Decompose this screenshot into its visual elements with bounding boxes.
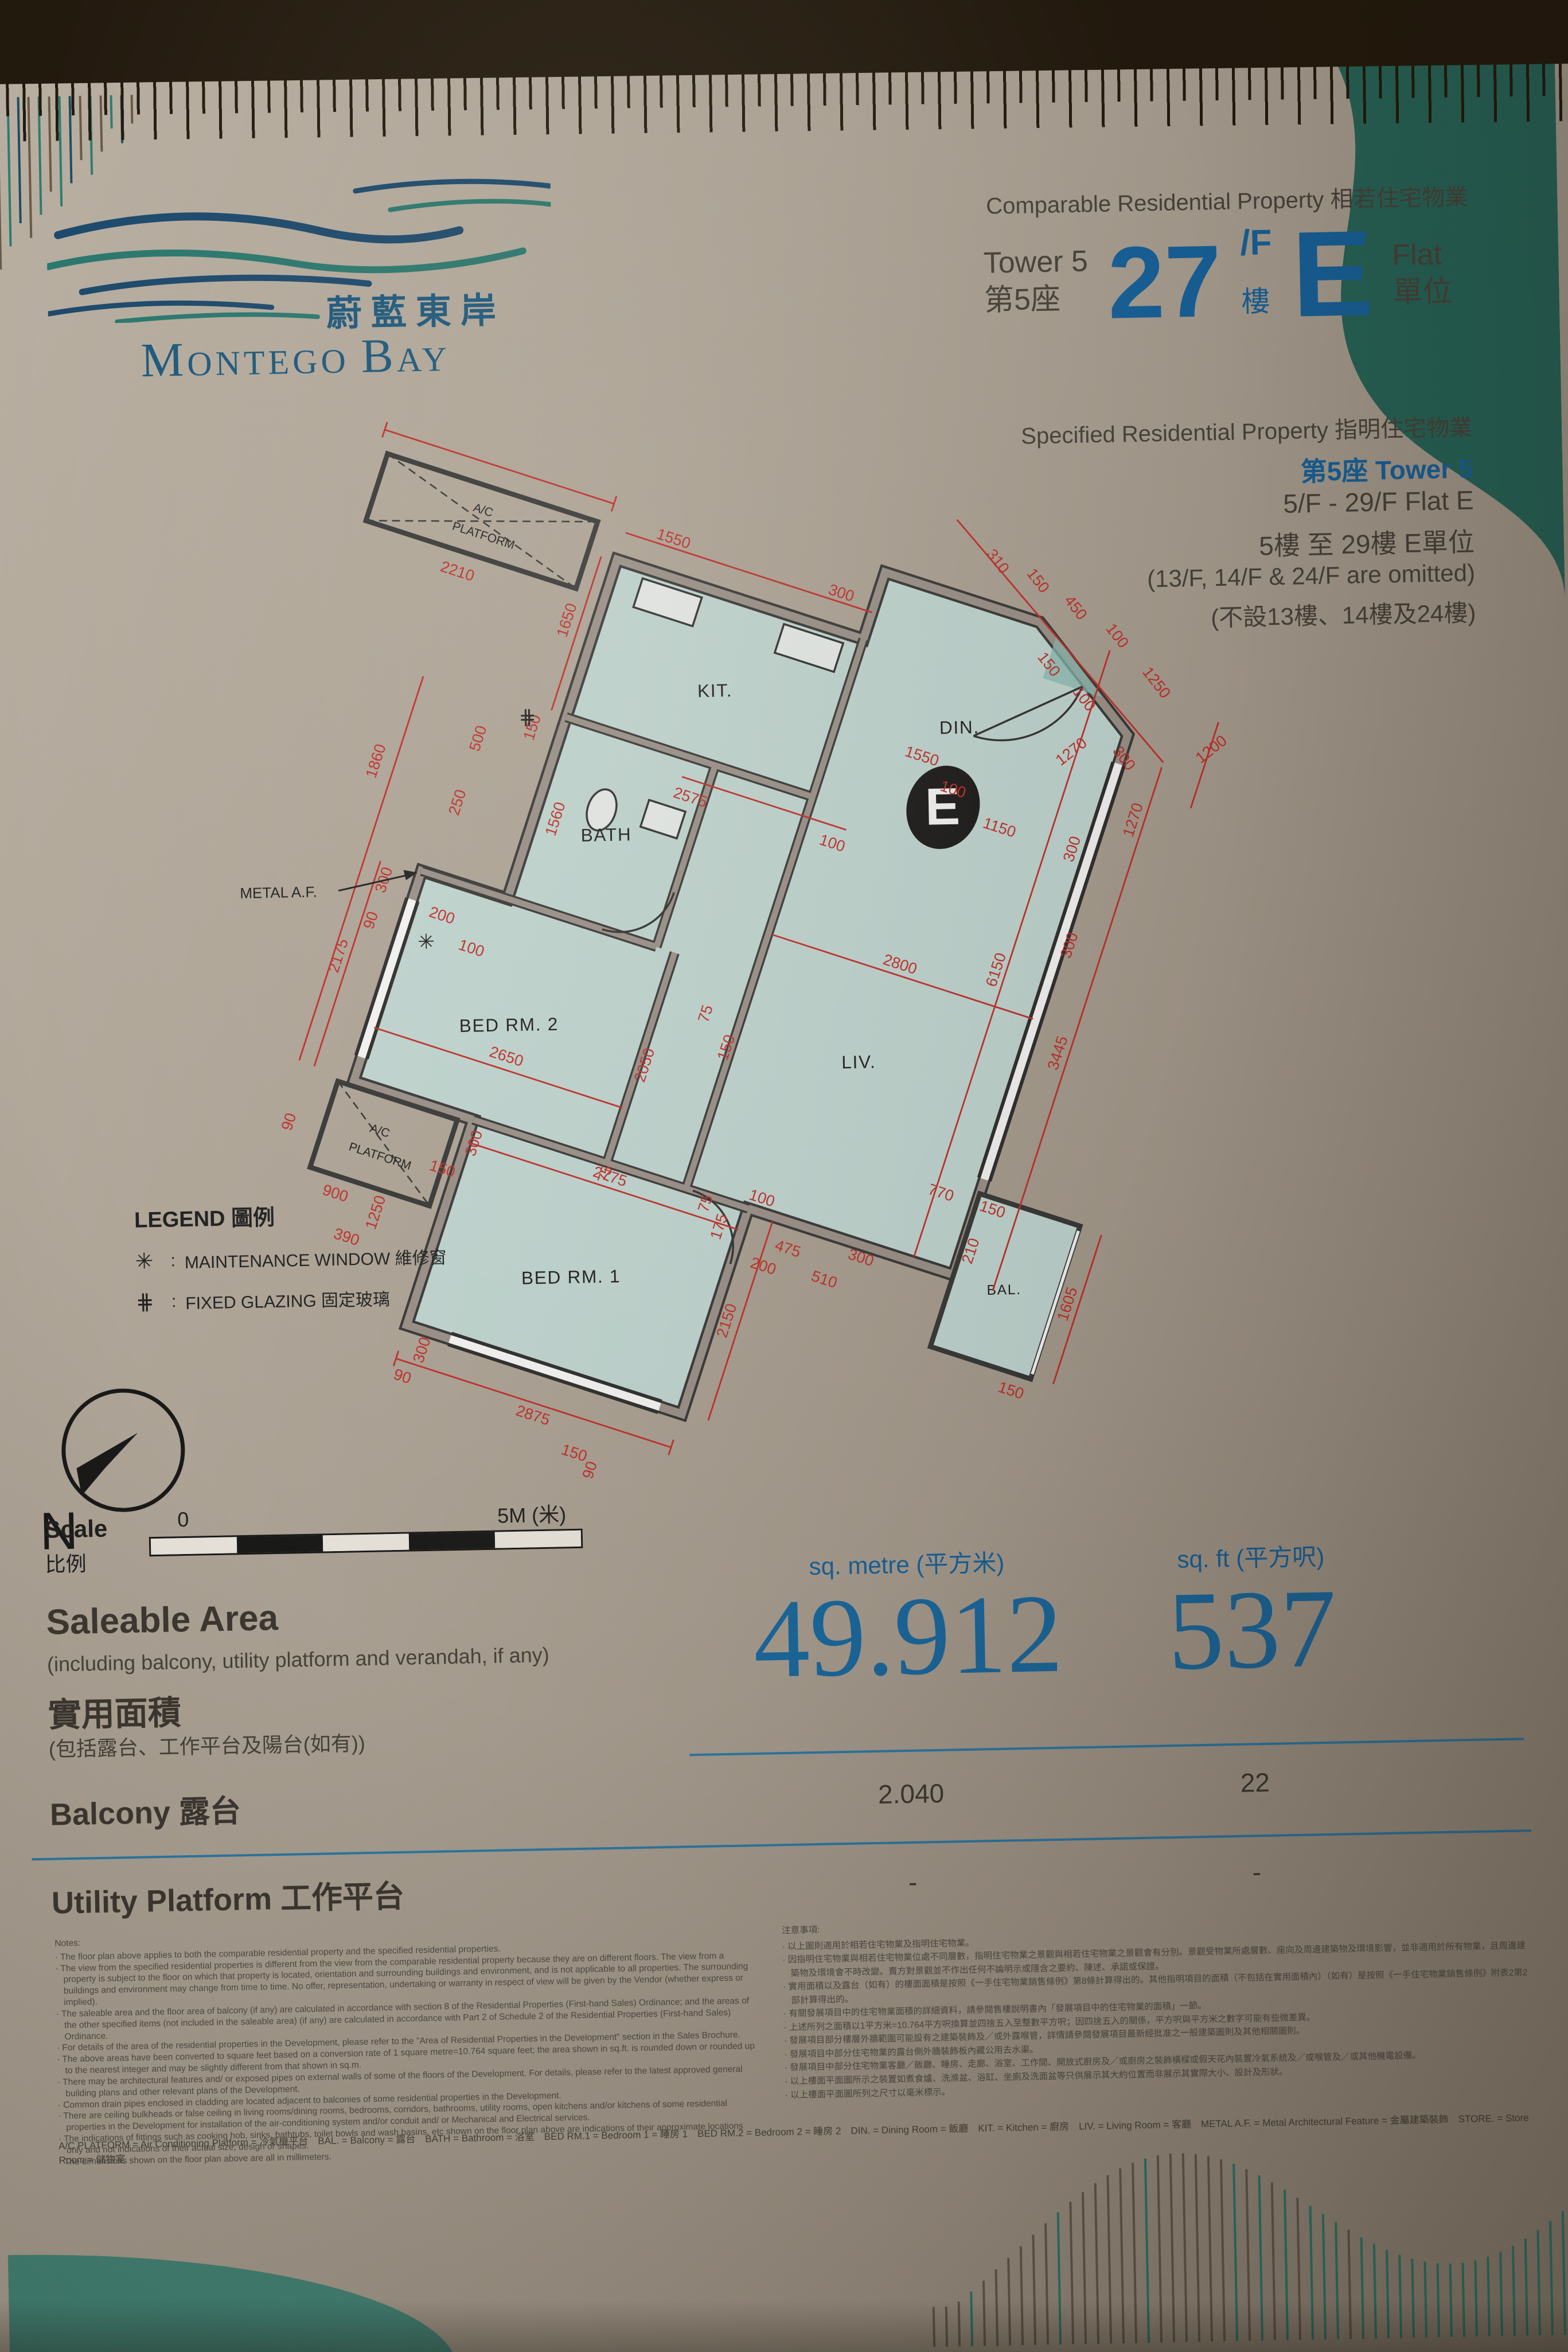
room-label-dining: DIN.: [939, 716, 980, 738]
deco-bar: [1058, 2212, 1060, 2345]
deco-bar: [1297, 2198, 1300, 2340]
deco-bar: [1488, 2257, 1489, 2337]
floor-range-zh: 5樓 至 29樓 E單位: [1259, 521, 1475, 563]
deco-bar: [1234, 2164, 1237, 2341]
floorplan-poster: 蔚藍東岸 MONTEGO BAY Comparable Residential …: [0, 0, 1568, 2352]
saleable-area-subtitle-en: (including balcony, utility platform and…: [47, 1643, 549, 1677]
deco-bar: [1120, 2168, 1124, 2343]
legend-maintenance-label: MAINTENANCE WINDOW 維修窗: [184, 1243, 446, 1274]
deco-bar: [1107, 2175, 1111, 2343]
deco-bar: [1387, 2250, 1388, 2338]
deco-bar: [1450, 2264, 1452, 2337]
floor-suffix: /F 樓: [1240, 222, 1273, 322]
balcony-row-label: Balcony 露台: [49, 1785, 241, 1834]
saleable-area-title-en: Saleable Area: [46, 1598, 279, 1643]
scale-segment: [151, 1537, 237, 1555]
deco-bar: [1285, 2190, 1288, 2340]
dim-label: 150: [996, 1378, 1027, 1403]
dim-label: 200: [748, 1253, 779, 1278]
brand-logo: 蔚藍東岸 MONTEGO BAY: [45, 171, 564, 327]
deco-bar: [984, 2281, 985, 2346]
dim-label: 150: [1023, 564, 1053, 596]
deco-bar: [1259, 2175, 1263, 2341]
dim-label: 2175: [324, 936, 352, 975]
dim-label: 300: [409, 1335, 434, 1365]
dim-label: 90: [392, 1365, 414, 1387]
logo-text: ONTEGO: [187, 342, 362, 383]
maintenance-window-icon: ✳: [135, 1248, 162, 1275]
compass-circle: [63, 1389, 184, 1511]
teal-curve-decoration-bottom-left: [8, 2246, 458, 2352]
omitted-floors-zh: (不設13樓、14樓及24樓): [1211, 594, 1476, 634]
unit-identifier-row: Tower 5 第5座 27 /F 樓 E Flat 單位: [983, 219, 1453, 328]
deco-bar: [1196, 2154, 1199, 2342]
dim-label: 475: [773, 1236, 803, 1260]
deco-bar: [1272, 2182, 1275, 2341]
deco-bar: [1425, 2261, 1426, 2337]
dim-label: 450: [1061, 591, 1091, 623]
scale-segment: [237, 1535, 323, 1553]
deco-bar: [934, 2307, 934, 2347]
deco-bar: [946, 2307, 947, 2347]
deco-bar: [1083, 2192, 1086, 2344]
dim-label: 2210: [438, 557, 477, 585]
scale-segment: [323, 1534, 409, 1552]
metal-af-label: METAL A.F.: [240, 883, 317, 902]
scale-max: 5M (米): [497, 1498, 567, 1529]
deco-bar: [1183, 2153, 1187, 2342]
deco-bar: [1323, 2214, 1325, 2339]
dim-label: 1270: [1119, 801, 1146, 839]
room-label-balcony: BAL.: [986, 1282, 1021, 1298]
deco-bar: [1513, 2246, 1515, 2336]
floor-suffix-zh: 樓: [1241, 278, 1273, 320]
deco-bar: [1133, 2163, 1136, 2343]
scale-zero: 0: [177, 1508, 189, 1532]
deco-bar: [1500, 2252, 1502, 2337]
wall-band-top: [0, 0, 1568, 84]
saleable-value-sqft: 537: [1062, 1561, 1442, 1698]
notes-list-zh: 以上圖則適用於相若住宅物業及指明住宅物業。因指明住宅物業與相若住宅物業位處不同層…: [782, 1926, 1533, 2102]
legend-glazing-label: FIXED GLAZING 固定玻璃: [185, 1285, 390, 1314]
deco-bar: [1538, 2230, 1540, 2335]
tower-label: Tower 5 第5座: [983, 243, 1089, 327]
room-label-bath: BATH: [580, 824, 631, 846]
dim-label: 2875: [514, 1401, 552, 1429]
room-label-kitchen: KIT.: [697, 680, 733, 701]
deco-bar: [1462, 2263, 1464, 2337]
deco-bar: [1412, 2259, 1414, 2338]
legend: LEGEND 圖例 ✳ : MAINTENANCE WINDOW 維修窗 ⋕ :…: [134, 1196, 448, 1315]
scale-segment: [495, 1531, 582, 1548]
saleable-area-subtitle-zh: (包括露台、工作平台及陽台(如有)): [48, 1727, 365, 1763]
deco-bar: [1145, 2159, 1149, 2343]
tower-zh: 第5座: [984, 280, 1089, 319]
specified-tower: 第5座 Tower 5: [1300, 448, 1473, 489]
legend-item-maintenance: ✳ : MAINTENANCE WINDOW 維修窗: [135, 1243, 447, 1274]
dim-label: 1250: [1139, 663, 1175, 702]
legend-colon: :: [171, 1292, 177, 1311]
dim-label: 1860: [362, 742, 389, 780]
ac-platform-top: [366, 454, 598, 589]
deco-bar: [1438, 2263, 1439, 2337]
balcony-value-sqft: 22: [1066, 1763, 1445, 1802]
logo-letter: B: [361, 329, 397, 383]
scale-label-zh: 比例: [45, 1547, 87, 1578]
deco-bar: [1158, 2155, 1161, 2342]
flat-zh: 單位: [1393, 273, 1453, 311]
floor-plan: E KIT. DIN. LIV. BATH BED RM. 2 BED RM. …: [180, 442, 1232, 1494]
saleable-area-title-zh: 實用面積: [48, 1685, 182, 1736]
scale-bar: [149, 1529, 583, 1557]
room-label-living: LIV.: [841, 1051, 876, 1072]
room-label-bedroom2: BED RM. 2: [459, 1014, 559, 1036]
flat-letter: E: [1291, 225, 1374, 322]
compass-needle-icon: [76, 1433, 139, 1496]
notes-chinese: 注意事項: 以上圖則適用於相若住宅物業及指明住宅物業。因指明住宅物業與相若住宅物…: [782, 1910, 1534, 2102]
flat-en: Flat: [1392, 236, 1452, 274]
deco-bar: [959, 2302, 960, 2346]
deco-bar: [1563, 2211, 1565, 2335]
logo-text: AY: [396, 340, 450, 379]
deco-bar: [1310, 2206, 1313, 2339]
deco-bar: [1526, 2238, 1527, 2335]
legend-title: LEGEND 圖例: [134, 1196, 446, 1233]
dim-label: 100: [1102, 620, 1132, 651]
deco-bar: [1475, 2260, 1477, 2337]
dim-label: 3445: [1044, 1034, 1071, 1072]
deco-bar: [1033, 2235, 1035, 2345]
floor-suffix-en: /F: [1240, 222, 1272, 263]
bar-pattern-decoration-bottom-right: [926, 2116, 1568, 2347]
logo-letter: M: [141, 333, 188, 388]
dim-label: 90: [359, 909, 381, 931]
legend-colon: :: [170, 1251, 175, 1271]
divider-line: [689, 1738, 1524, 1756]
floor-range-en: 5/F - 29/F Flat E: [1283, 485, 1474, 519]
room-label-ac2-line1: A/C: [368, 1122, 391, 1140]
deco-bar: [1021, 2246, 1023, 2346]
dim-label: 250: [444, 787, 469, 817]
dim-label: 300: [826, 580, 857, 605]
utility-row-label: Utility Platform 工作平台: [51, 1871, 404, 1923]
dim-label: 90: [278, 1111, 300, 1132]
deco-bar: [1348, 2230, 1351, 2339]
room-label-ac1-line2: PLATFORM: [451, 520, 516, 552]
deco-bar: [1070, 2202, 1073, 2344]
dim-label: 310: [983, 546, 1013, 577]
deco-bar: [971, 2291, 972, 2346]
flat-label: Flat 單位: [1392, 236, 1453, 320]
deco-bar: [1221, 2159, 1224, 2341]
dim-label: 150: [427, 1156, 458, 1181]
deco-bar: [1008, 2258, 1010, 2346]
deco-bar: [1246, 2169, 1250, 2341]
maintenance-window-symbol: ✳: [418, 929, 435, 953]
room-label-bedroom1: BED RM. 1: [521, 1265, 621, 1288]
deco-bar: [1336, 2222, 1338, 2339]
deco-bar: [1399, 2255, 1401, 2338]
scale-label-en: Scale: [44, 1515, 108, 1544]
fixed-glazing-symbol: ⋕: [518, 705, 536, 729]
deco-bar: [1095, 2183, 1098, 2344]
deco-bar: [1550, 2221, 1553, 2335]
utility-value-sqft: -: [1067, 1853, 1446, 1891]
deco-bar: [1046, 2224, 1048, 2345]
deco-bar: [1374, 2244, 1376, 2339]
dim-label: 500: [465, 723, 490, 754]
floor-number: 27: [1107, 239, 1222, 325]
tower-en: Tower 5: [983, 243, 1088, 282]
brand-english-name: MONTEGO BAY: [140, 327, 450, 388]
deco-bar: [1208, 2156, 1212, 2341]
room-label-ac2-line2: PLATFORM: [347, 1140, 412, 1173]
deco-bar: [1362, 2237, 1363, 2339]
deco-bar: [1171, 2154, 1174, 2342]
scale-segment: [409, 1532, 496, 1550]
dim-label: 510: [809, 1267, 840, 1291]
dim-label: 1200: [1192, 731, 1230, 767]
fixed-glazing-icon: ⋕: [135, 1289, 162, 1315]
deco-bar: [996, 2269, 998, 2346]
poster-content: 蔚藍東岸 MONTEGO BAY Comparable Residential …: [0, 0, 1568, 2352]
